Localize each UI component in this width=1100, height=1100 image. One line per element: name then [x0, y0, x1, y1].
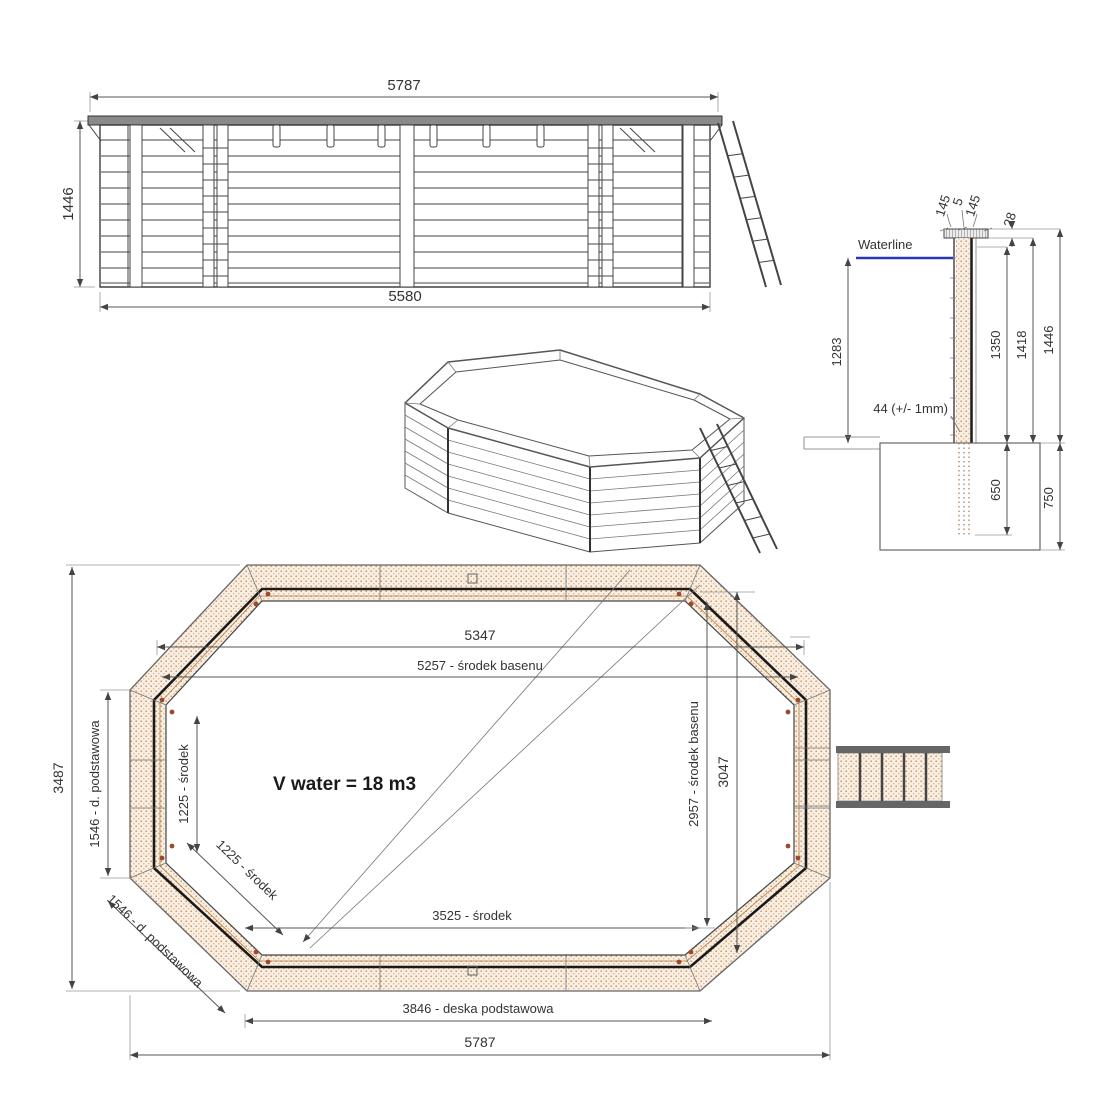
plan-3525-label: 3525 - środek: [432, 908, 512, 923]
elevation-left-extension-lines: [74, 121, 95, 287]
elevation-view: 5787 1446: [60, 77, 781, 312]
elevation-ladder: [718, 121, 781, 287]
plan-3047-label: 3047: [715, 756, 731, 787]
section-cap-left-label: 145: [932, 193, 953, 218]
plan-5347-label: 5347: [464, 627, 495, 643]
elevation-top-rim: [88, 116, 722, 125]
plan-1546-left-extensions: [100, 690, 130, 878]
elevation-post: [130, 125, 142, 287]
plan-1225-diagonal-label: 1225 - środek: [213, 837, 281, 903]
plan-view: 3487 1546 - d. podstawowa 5347 5257 - śr…: [50, 565, 950, 1060]
plan-wood-line: [160, 596, 799, 961]
plan-volume-label: V water = 18 m3: [273, 774, 416, 795]
plan-2957-label: 2957 - środek basenu: [686, 701, 701, 827]
pool-drawing-svg: 5787 1446: [0, 0, 1100, 1100]
plan-diagonal-line-2: [310, 585, 700, 948]
section-1350-label: 1350: [988, 331, 1003, 360]
waterline-label: Waterline: [858, 237, 912, 252]
section-cap-right-label: 145: [962, 193, 983, 218]
elevation-bottom-dim-label: 5580: [388, 288, 421, 305]
plan-3487-label: 3487: [50, 762, 66, 793]
section-bottom-extension-lines: [975, 535, 1065, 550]
cross-section-view: 145 5 145 Waterline 1283 28 1350 1418 14…: [804, 193, 1065, 550]
section-650-label: 650: [988, 479, 1003, 501]
elevation-top-dim-label: 5787: [387, 77, 420, 94]
elevation-top-extension-lines: [90, 92, 718, 112]
section-wall: [950, 238, 976, 443]
plan-1225-left-label: 1225 - środek: [176, 744, 191, 824]
plan-1546-left-label: 1546 - d. podstawowa: [87, 720, 102, 848]
section-750-label: 750: [1041, 487, 1056, 509]
plan-diagonal-line: [303, 570, 630, 942]
elevation-post: [400, 125, 414, 287]
plan-5787-label: 5787: [464, 1034, 495, 1050]
section-28-label: 28: [1000, 210, 1019, 228]
section-cap-gap-label: 5: [949, 196, 966, 208]
section-1283-label: 1283: [829, 338, 844, 367]
section-post-dotted: [959, 443, 969, 535]
technical-drawing-page: 5787 1446: [0, 0, 1100, 1100]
plan-5257-label: 5257 - środek basenu: [417, 658, 543, 673]
plan-3846-label: 3846 - deska podstawowa: [402, 1001, 554, 1016]
elevation-left-dim-label: 1446: [60, 187, 77, 220]
section-cap-board: [944, 229, 988, 238]
section-44-label: 44 (+/- 1mm): [873, 401, 948, 416]
section-foundation-box: [880, 443, 1040, 550]
section-1446-label: 1446: [1041, 326, 1056, 355]
elevation-post: [683, 125, 694, 287]
perspective-view: [405, 350, 777, 553]
section-1418-label: 1418: [1014, 331, 1029, 360]
section-ground-lines: [804, 437, 880, 449]
